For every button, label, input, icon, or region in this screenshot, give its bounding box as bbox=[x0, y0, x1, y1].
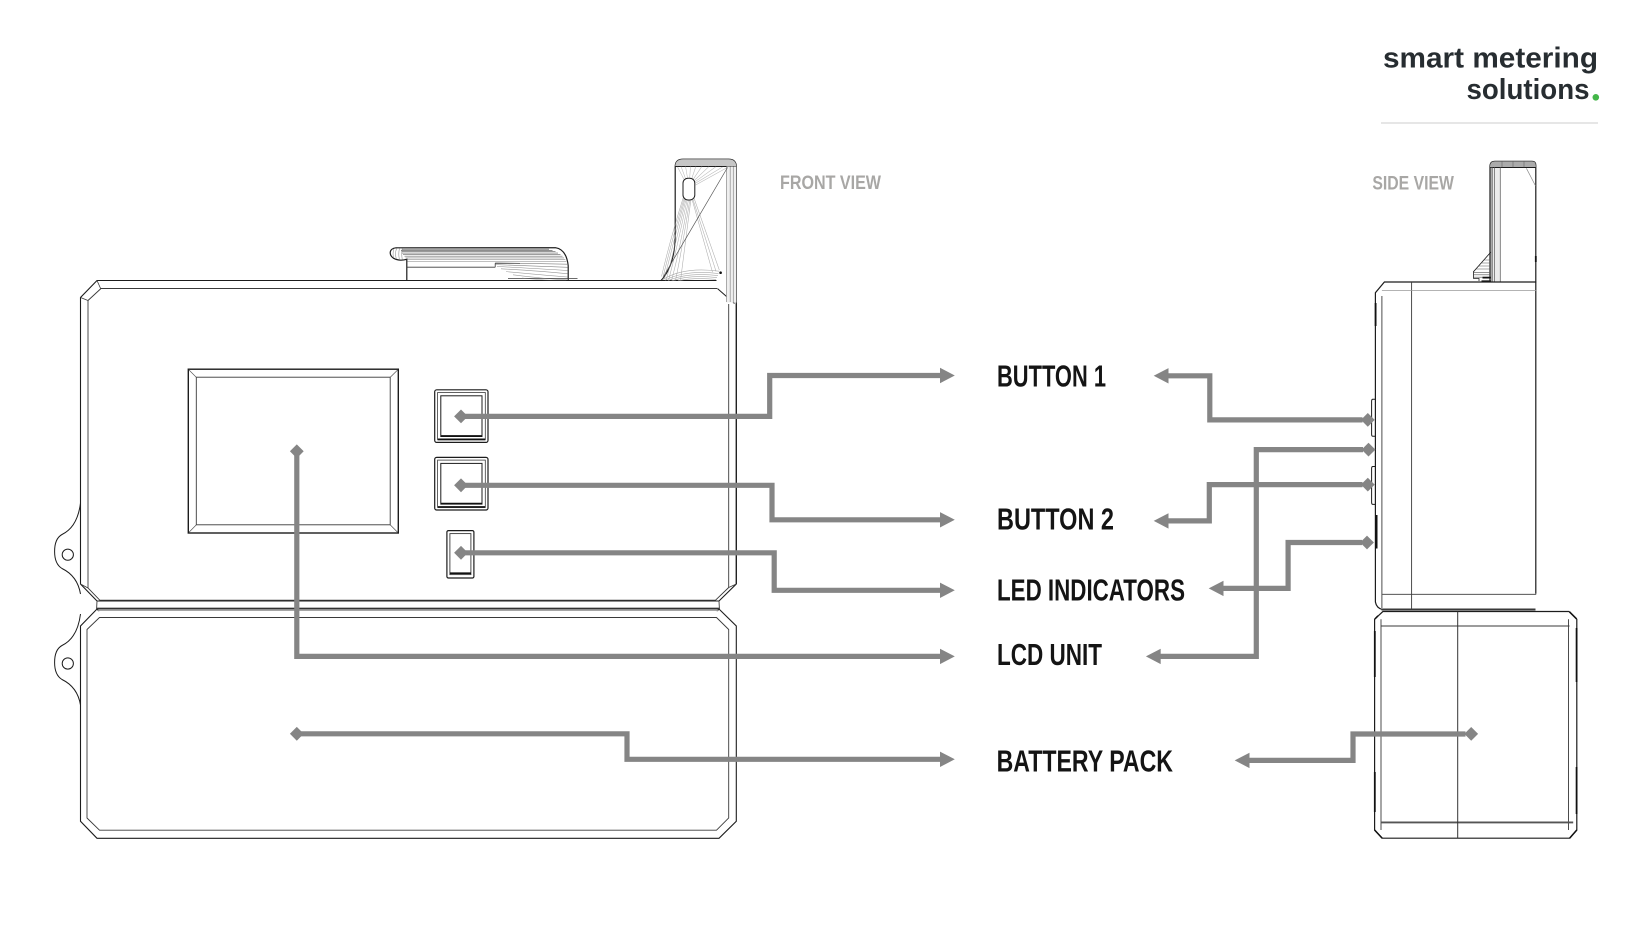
svg-text:BUTTON 1: BUTTON 1 bbox=[997, 358, 1106, 393]
svg-text:LED INDICATORS: LED INDICATORS bbox=[997, 573, 1185, 608]
svg-text:smart metering: smart metering bbox=[1383, 43, 1598, 75]
svg-text:BATTERY PACK: BATTERY PACK bbox=[997, 744, 1174, 779]
svg-text:LCD UNIT: LCD UNIT bbox=[997, 637, 1102, 672]
svg-text:solutions: solutions bbox=[1467, 74, 1590, 106]
svg-text:FRONT VIEW: FRONT VIEW bbox=[780, 172, 881, 194]
svg-text:BUTTON 2: BUTTON 2 bbox=[997, 502, 1114, 537]
svg-text:SIDE VIEW: SIDE VIEW bbox=[1372, 173, 1454, 195]
